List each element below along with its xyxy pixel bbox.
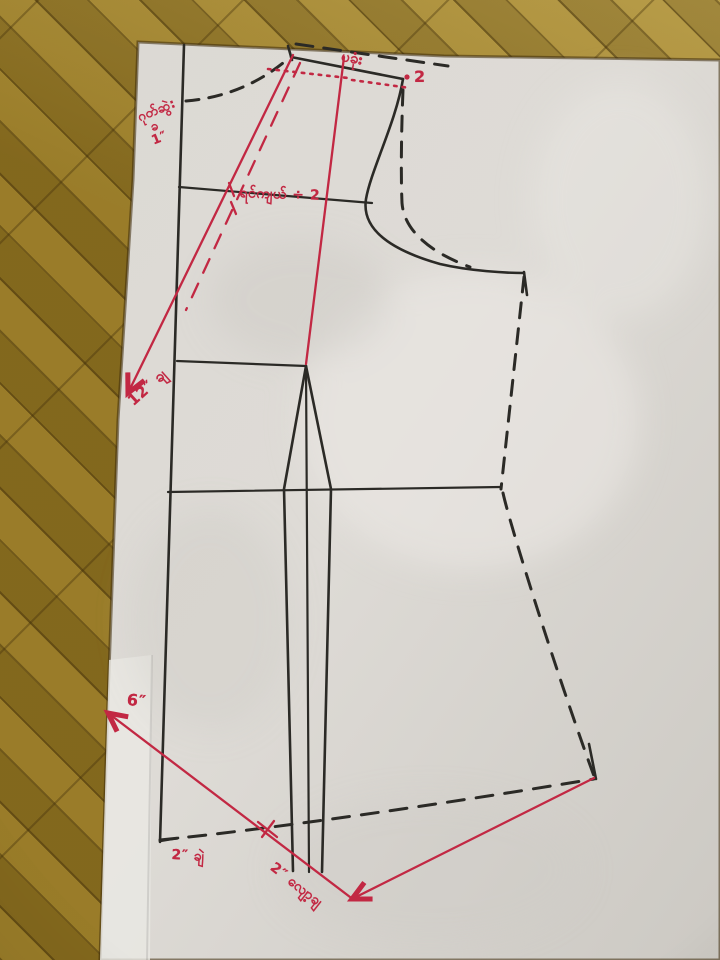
- photo-of-sewing-pattern: ပခုံး 2 ဂုတ်ဆွဲ: ခ 1″ ရင်ကျယ် ÷ 2 12″ ချ…: [0, 0, 720, 960]
- shoulder-word-label: ပခုံး: [339, 47, 364, 72]
- pattern-drawing: [0, 0, 720, 960]
- shoulder-point-value-label: 2: [414, 67, 426, 86]
- hem-flare-6in-label: 6″: [126, 690, 147, 711]
- chest-formula-label: ရင်ကျယ် ÷ 2: [239, 183, 320, 207]
- hem-left-2in-label: 2″ ချဲ: [171, 845, 205, 868]
- point-marker-dot: [404, 74, 409, 79]
